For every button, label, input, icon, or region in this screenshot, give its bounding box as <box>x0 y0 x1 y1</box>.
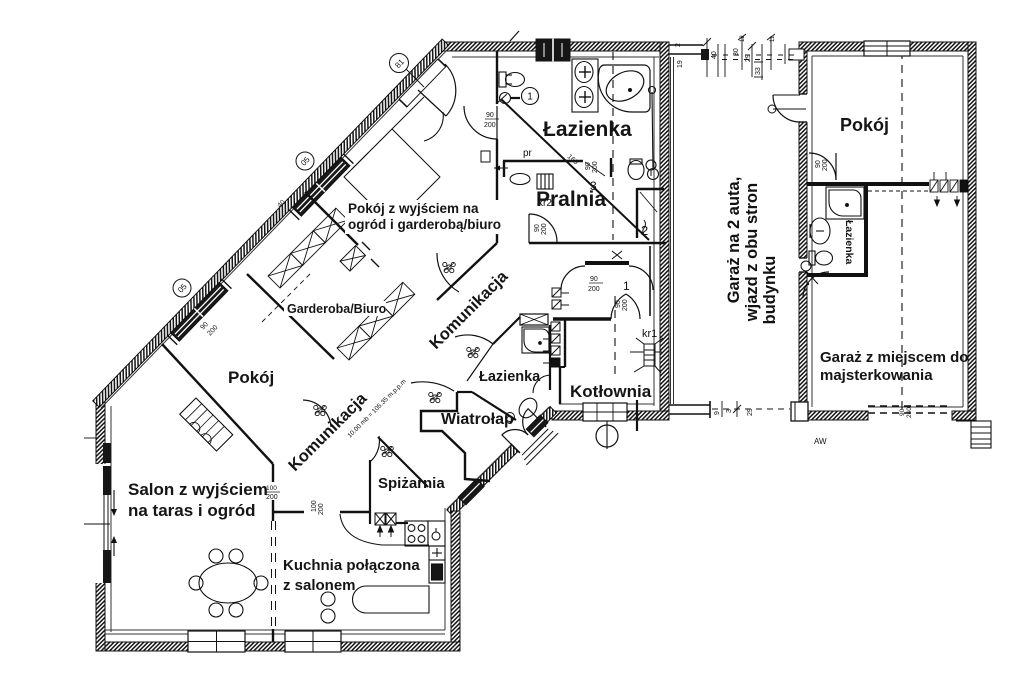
svg-text:Łazienka: Łazienka <box>479 369 541 385</box>
svg-text:200: 200 <box>484 122 496 129</box>
svg-text:9: 9 <box>714 411 721 415</box>
svg-text:200: 200 <box>622 299 629 311</box>
svg-text:ogród i garderobą/biuro: ogród i garderobą/biuro <box>348 217 501 232</box>
svg-text:19: 19 <box>677 60 684 68</box>
svg-text:Pralnia: Pralnia <box>536 188 606 211</box>
svg-text:wjazd z obu stron: wjazd z obu stron <box>743 183 761 322</box>
svg-text:Pokój z wyjściem na: Pokój z wyjściem na <box>348 201 479 216</box>
svg-text:kr1: kr1 <box>642 328 657 340</box>
svg-text:Kotłownia: Kotłownia <box>570 382 652 401</box>
svg-text:200: 200 <box>541 223 548 235</box>
svg-text:pr: pr <box>523 148 533 159</box>
svg-text:100: 100 <box>266 485 277 492</box>
svg-text:40: 40 <box>711 51 718 59</box>
svg-text:1: 1 <box>623 279 630 293</box>
svg-text:3: 3 <box>726 409 733 413</box>
svg-text:z salonem: z salonem <box>283 577 356 594</box>
svg-text:29: 29 <box>745 54 752 62</box>
svg-text:Kuchnia połączona: Kuchnia połączona <box>283 557 420 574</box>
svg-text:budynku: budynku <box>761 256 779 325</box>
svg-text:Spiżarnia: Spiżarnia <box>378 475 445 492</box>
svg-text:90: 90 <box>534 224 541 232</box>
svg-text:200: 200 <box>318 503 325 515</box>
svg-text:Łazienka: Łazienka <box>543 118 632 141</box>
svg-text:Pokój: Pokój <box>228 368 274 387</box>
svg-text:29: 29 <box>747 408 754 416</box>
svg-text:12: 12 <box>740 35 746 42</box>
svg-text:240: 240 <box>906 407 913 418</box>
svg-text:Garaż na 2 auta,: Garaż na 2 auta, <box>725 177 743 304</box>
svg-text:na taras i ogród: na taras i ogród <box>128 501 256 520</box>
svg-text:2: 2 <box>675 43 682 47</box>
svg-text:11: 11 <box>770 35 776 42</box>
svg-text:200: 200 <box>592 161 599 173</box>
svg-text:200: 200 <box>588 286 600 293</box>
svg-text:Pokój: Pokój <box>840 115 889 135</box>
svg-text:90: 90 <box>615 300 622 308</box>
svg-text:33: 33 <box>755 67 762 75</box>
svg-text:90: 90 <box>815 160 822 168</box>
svg-text:Łazienka: Łazienka <box>843 220 855 265</box>
svg-text:1: 1 <box>527 92 533 103</box>
svg-text:90: 90 <box>899 408 906 416</box>
svg-text:200: 200 <box>266 494 278 501</box>
svg-text:Wiatrołap: Wiatrołap <box>441 411 514 428</box>
svg-text:90: 90 <box>590 276 598 283</box>
svg-text:100: 100 <box>311 500 318 512</box>
svg-text:Garderoba/Biuro: Garderoba/Biuro <box>287 302 387 316</box>
svg-text:majsterkowania: majsterkowania <box>820 367 933 384</box>
svg-text:90: 90 <box>585 162 592 170</box>
svg-text:Garaż z miejscem do: Garaż z miejscem do <box>820 349 968 366</box>
svg-text:90: 90 <box>486 112 494 119</box>
svg-text:30: 30 <box>733 48 740 56</box>
svg-text:Salon z wyjściem: Salon z wyjściem <box>128 480 268 499</box>
svg-text:200: 200 <box>822 159 829 171</box>
svg-text:AW: AW <box>814 437 827 446</box>
